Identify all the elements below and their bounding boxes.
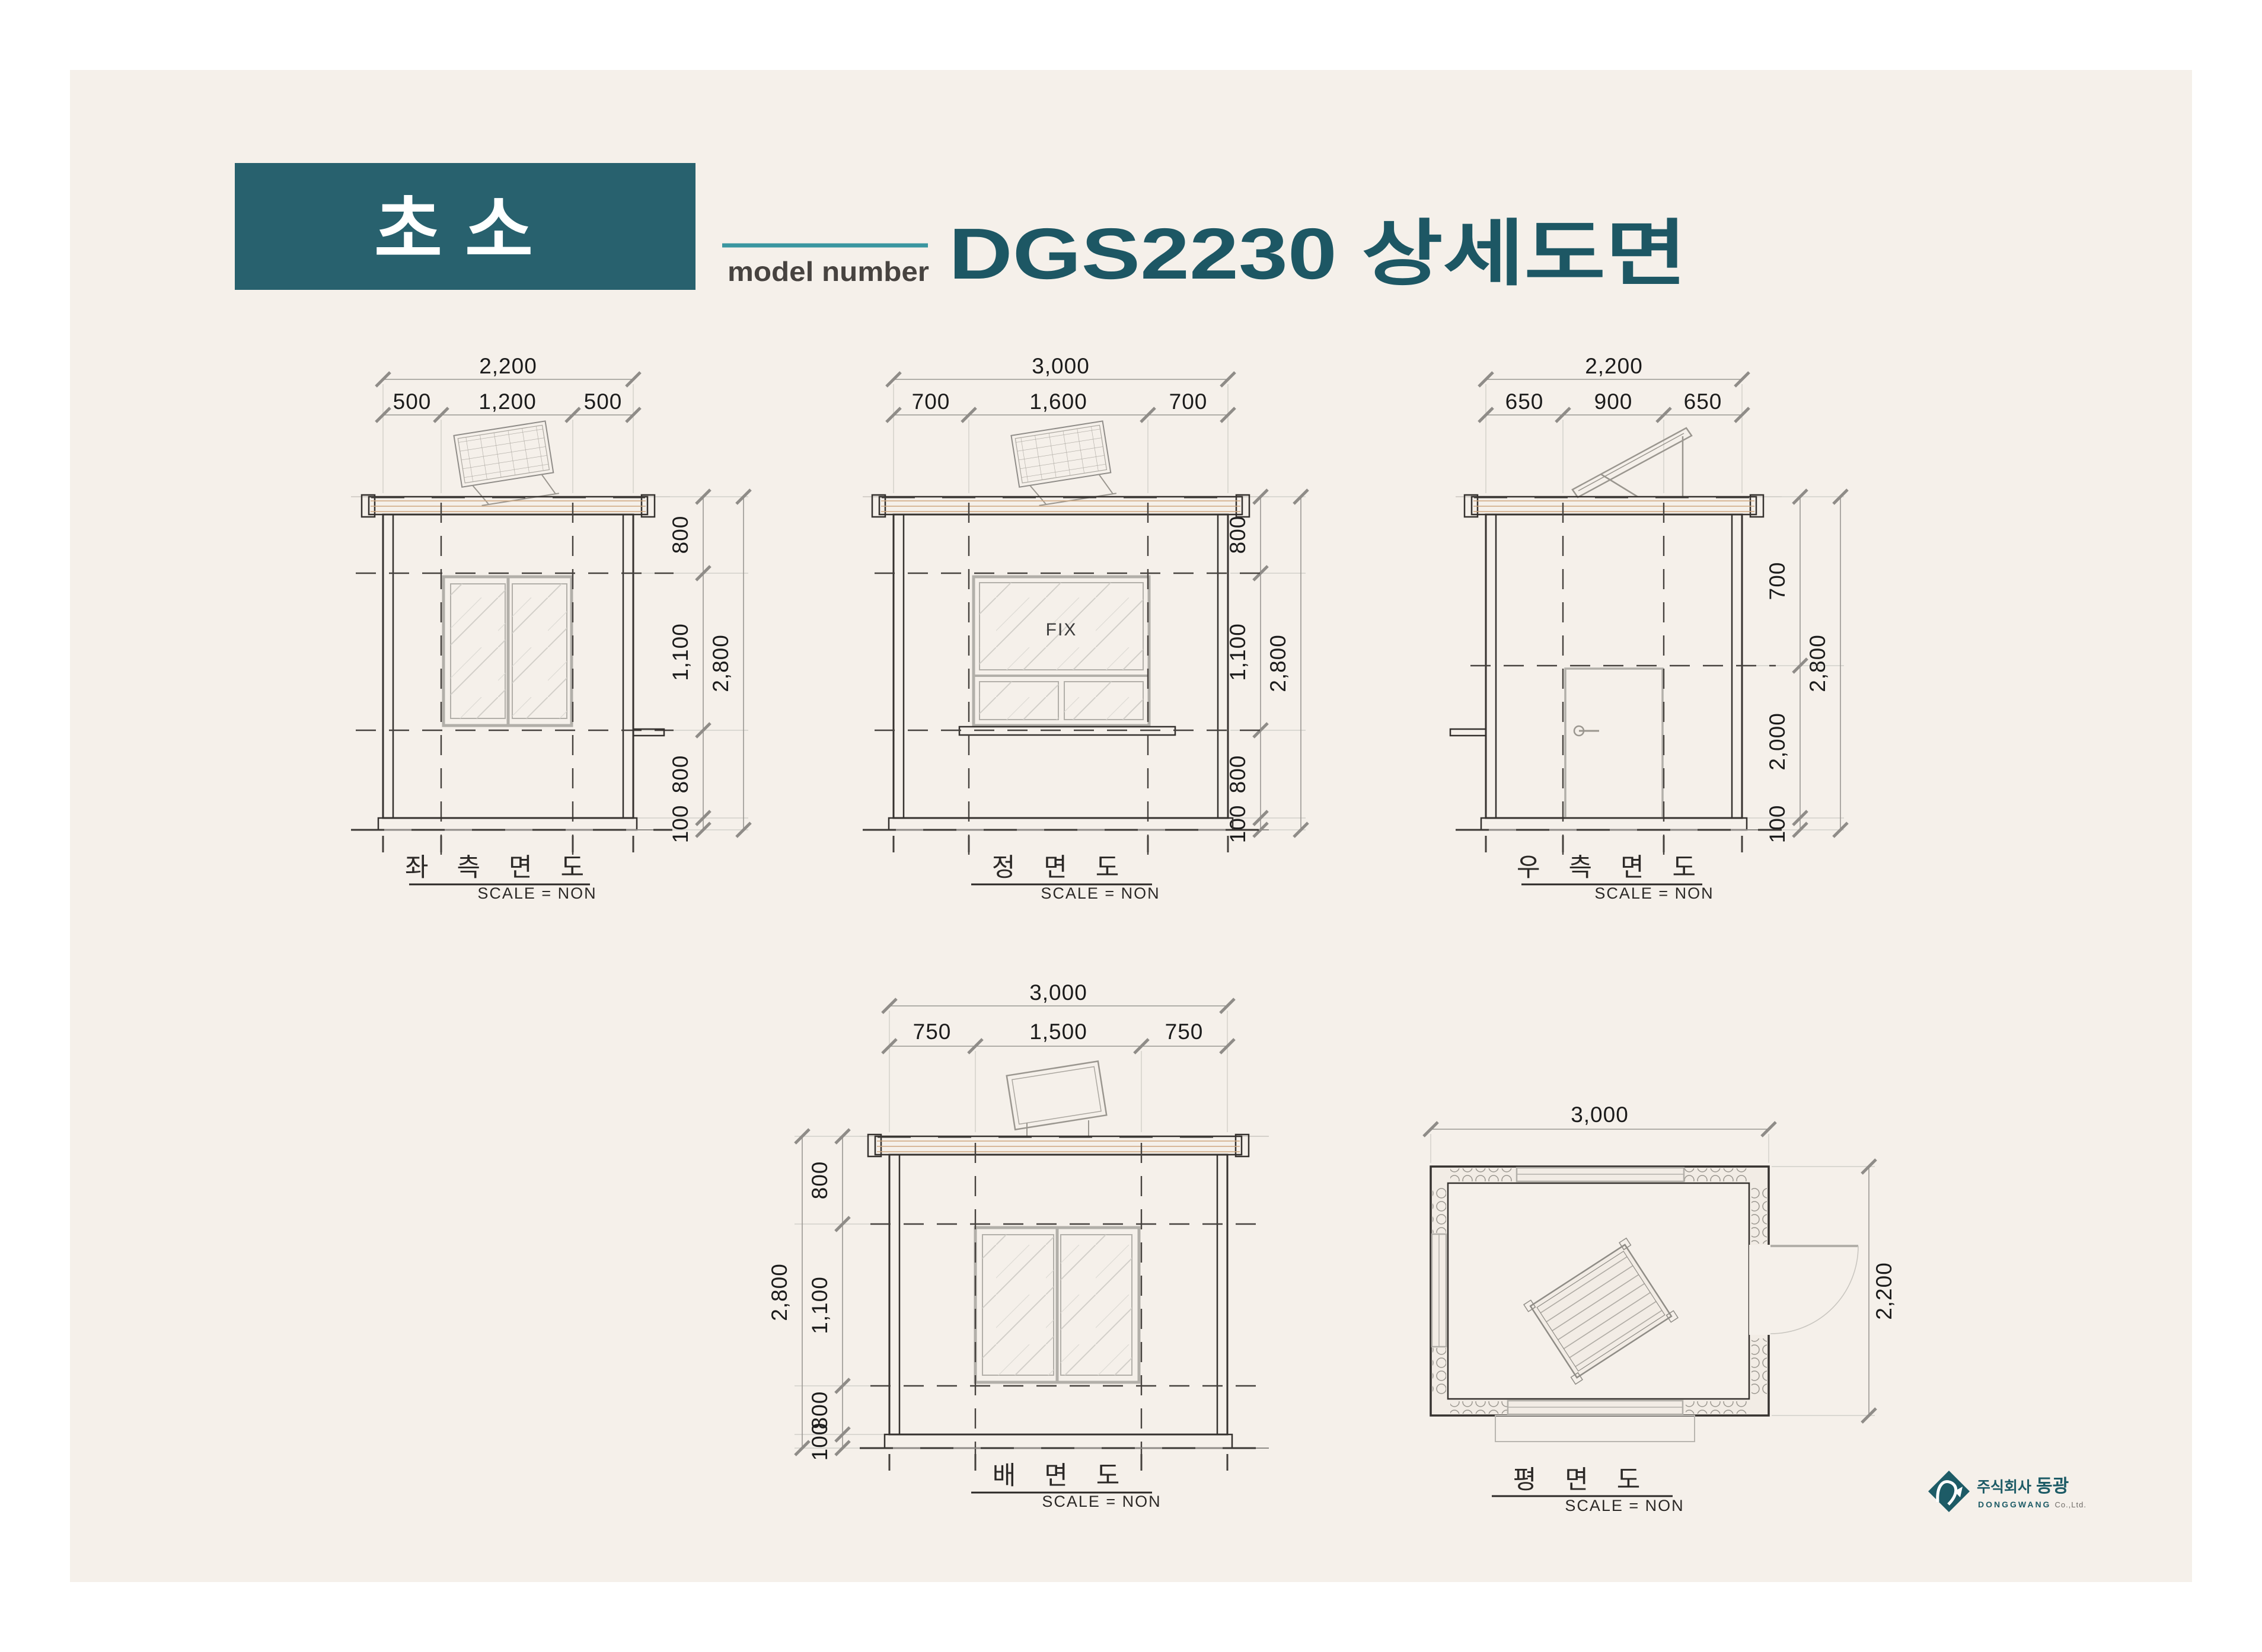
dim-total-height: 2,800: [1266, 634, 1290, 692]
insulation-hatch: [1433, 1348, 1446, 1397]
page-title: DGS2230 상세도면: [949, 213, 1687, 294]
dim-seg-w3: 750: [1165, 1020, 1204, 1044]
dim-seg-w1: 650: [1505, 389, 1544, 414]
insulation-hatch: [1751, 1338, 1767, 1397]
front-view-window: FIX: [959, 577, 1175, 735]
left-view-title: 좌 측 면 도: [405, 854, 595, 882]
dim-seg-h4: 100: [1226, 805, 1250, 843]
plan-view-title: 평 면 도: [1513, 1466, 1651, 1494]
dim-total-width: 3,000: [1032, 354, 1090, 378]
insulation-hatch: [1751, 1186, 1767, 1244]
dim-seg-w2: 1,600: [1029, 389, 1087, 414]
dim-seg-w3: 700: [1169, 389, 1208, 414]
insulation-hatch: [1433, 1186, 1446, 1233]
dim-seg-h2: 1,100: [1226, 623, 1250, 681]
logo-en-suffix: Co.,Ltd.: [2054, 1500, 2086, 1509]
dim-seg-w2: 1,200: [478, 389, 537, 414]
dim-seg-w3: 650: [1684, 389, 1722, 414]
insulation-hatch: [1450, 1168, 1514, 1181]
dim-seg-h3: 800: [668, 755, 693, 794]
left-view-window: [444, 577, 572, 726]
dim-total-width: 3,000: [1029, 980, 1087, 1005]
dim-seg-w2: 900: [1594, 389, 1633, 414]
dim-seg-w3: 500: [584, 389, 623, 414]
front-view-title: 정 면 도: [992, 854, 1130, 882]
dim-seg-h3: 100: [1765, 805, 1789, 843]
insulation-hatch: [1686, 1401, 1747, 1414]
right-view-scale: SCALE = NON: [1594, 884, 1714, 902]
dim-seg-h2: 2,000: [1765, 712, 1789, 771]
drawing-sheet-page: 초소 model number DGS2230 상세도면: [0, 0, 2262, 1652]
dim-seg-h4: 100: [668, 805, 693, 843]
logo-kr-name: 동광: [2036, 1477, 2069, 1496]
model-number-label: model number: [728, 256, 929, 287]
dim-seg-w1: 750: [913, 1020, 952, 1044]
rear-view-title: 배 면 도: [993, 1462, 1131, 1490]
dim-seg-h4: 100: [808, 1423, 832, 1461]
badge-label: 초소: [374, 190, 556, 272]
logo-en-name: DONGGWANG: [1978, 1500, 2051, 1509]
dim-seg-h3: 800: [1226, 755, 1250, 794]
dim-seg-w1: 700: [912, 389, 950, 414]
dim-total-height: 2,800: [1805, 634, 1830, 692]
dim-seg-h2: 1,100: [808, 1276, 832, 1334]
logo-korean-name: 주식회사동광: [1977, 1477, 2069, 1496]
front-view-scale: SCALE = NON: [1041, 884, 1160, 902]
logo-english-name: DONGGWANGCo.,Ltd.: [1978, 1500, 2086, 1509]
rear-view-scale: SCALE = NON: [1042, 1493, 1161, 1510]
drawing-sheet: 초소 model number DGS2230 상세도면: [0, 0, 2262, 1652]
plan-view-scale: SCALE = NON: [1565, 1497, 1684, 1514]
right-view-title: 우 측 면 도: [1517, 854, 1706, 882]
dim-total-height: 2,800: [767, 1263, 792, 1321]
dim-seg-h1: 800: [668, 516, 693, 554]
dim-total-height: 2,800: [709, 634, 733, 692]
dim-seg-h1: 800: [808, 1161, 832, 1200]
dim-total-width: 2,200: [1585, 354, 1643, 378]
plan-dim-width: 3,000: [1571, 1103, 1629, 1127]
insulation-hatch: [1450, 1401, 1507, 1414]
dim-total-width: 2,200: [479, 354, 537, 378]
dim-seg-w1: 500: [393, 389, 432, 414]
dim-seg-h1: 700: [1765, 562, 1789, 600]
dim-seg-h1: 800: [1226, 516, 1250, 554]
insulation-hatch: [1684, 1168, 1747, 1181]
logo-kr-prefix: 주식회사: [1977, 1479, 2031, 1496]
fix-window-label: FIX: [1046, 620, 1077, 640]
rear-view-window: [975, 1228, 1139, 1382]
dim-seg-w2: 1,500: [1029, 1020, 1087, 1044]
left-view-scale: SCALE = NON: [477, 884, 596, 902]
dim-seg-h2: 1,100: [668, 623, 693, 681]
plan-dim-depth: 2,200: [1872, 1262, 1896, 1320]
